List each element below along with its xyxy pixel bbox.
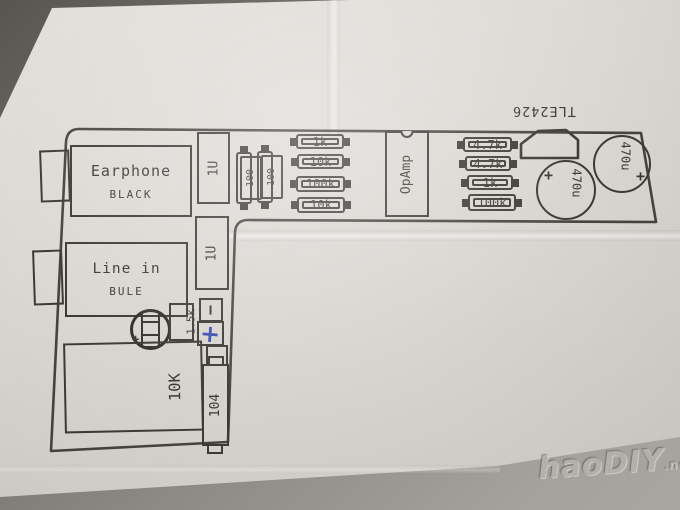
- opamp-ic: OpAmp: [385, 131, 429, 217]
- earphone-box: Earphone BLACK: [70, 145, 192, 217]
- resistor-10k-label: 10k: [302, 158, 339, 165]
- pot-10k-box: 10K: [63, 341, 204, 434]
- capacitor-104: 104: [202, 364, 229, 446]
- earphone-jack: [39, 149, 71, 202]
- capacitor-470u-2-label: 470u: [618, 142, 632, 171]
- tle2426-label-wrap: TLE2426: [503, 98, 585, 124]
- resistor-4-7k-2-label: 4.7k: [470, 160, 506, 167]
- capacitor-470u-1-label: 470u: [569, 169, 583, 198]
- resistor-1k-2-label: 1k: [472, 179, 508, 186]
- pot-10k-label: 10K: [166, 373, 185, 401]
- resistor-1k-label: 1k: [301, 138, 339, 145]
- resistor-10k-2-label: 10k: [302, 201, 340, 209]
- resistor-100k-2: 100k: [468, 194, 516, 211]
- linein-title: Line in: [92, 261, 160, 277]
- capacitor-470u-2: 470u +: [593, 135, 651, 193]
- resistor-1k-2: 1k: [467, 175, 513, 190]
- capacitor-470u-1-plus: +: [544, 166, 553, 184]
- resistor-10k: 10k: [297, 154, 344, 169]
- watermark-suffix: .net: [664, 457, 680, 474]
- opamp-notch: [401, 131, 414, 138]
- opamp-label: OpAmp: [399, 154, 414, 193]
- capacitor-1u-1-label: 1U: [206, 160, 221, 176]
- linein-color-label: BULE: [109, 285, 144, 298]
- resistor-10k-2: 10k: [297, 197, 345, 213]
- capacitor-470u-2-plus: +: [636, 167, 645, 185]
- resistor-100-1: 100: [236, 152, 252, 204]
- polarity-minus-box: −: [199, 298, 223, 322]
- electrolytic-cap-seam-2: [143, 334, 158, 336]
- pot-10k-label-wrap: 10K: [164, 365, 187, 409]
- resistor-100k-2-label: 100k: [473, 198, 511, 207]
- resistor-4-7k-1: 4.7k: [463, 137, 512, 152]
- photo-scene: TLE2426 Earphone BLACK Line in BULE 1U 1…: [0, 0, 680, 510]
- earphone-color-label: BLACK: [109, 188, 152, 201]
- electrolytic-cap-seam-1: [143, 321, 158, 323]
- resistor-100k: 100k: [296, 176, 345, 192]
- capacitor-470u-1: + 470u: [536, 160, 596, 220]
- polarity-minus: −: [201, 305, 221, 315]
- tle2426-package: [521, 130, 578, 158]
- capacitor-104-label: 104: [208, 393, 223, 416]
- tle2426-label: TLE2426: [512, 103, 576, 119]
- resistor-4-7k-2: 4.7k: [465, 156, 511, 171]
- capacitor-1u-1: 1U: [197, 132, 230, 204]
- earphone-title: Earphone: [91, 162, 171, 180]
- capacitor-1u-2: 1U: [195, 216, 229, 290]
- polarity-plus: +: [200, 321, 222, 346]
- linein-jack: [32, 249, 64, 305]
- resistor-100-2: 100: [257, 151, 273, 203]
- resistor-100k-label: 100k: [301, 180, 340, 188]
- capacitor-104-lead-bottom: [207, 444, 223, 454]
- resistor-1k: 1k: [296, 134, 344, 149]
- resistor-4-7k-1-label: 4.7k: [468, 141, 507, 148]
- resistor-100-1-label: 100: [246, 169, 256, 187]
- resistor-100-2-label: 100: [267, 168, 277, 186]
- capacitor-1u-2-label: 1U: [205, 245, 220, 261]
